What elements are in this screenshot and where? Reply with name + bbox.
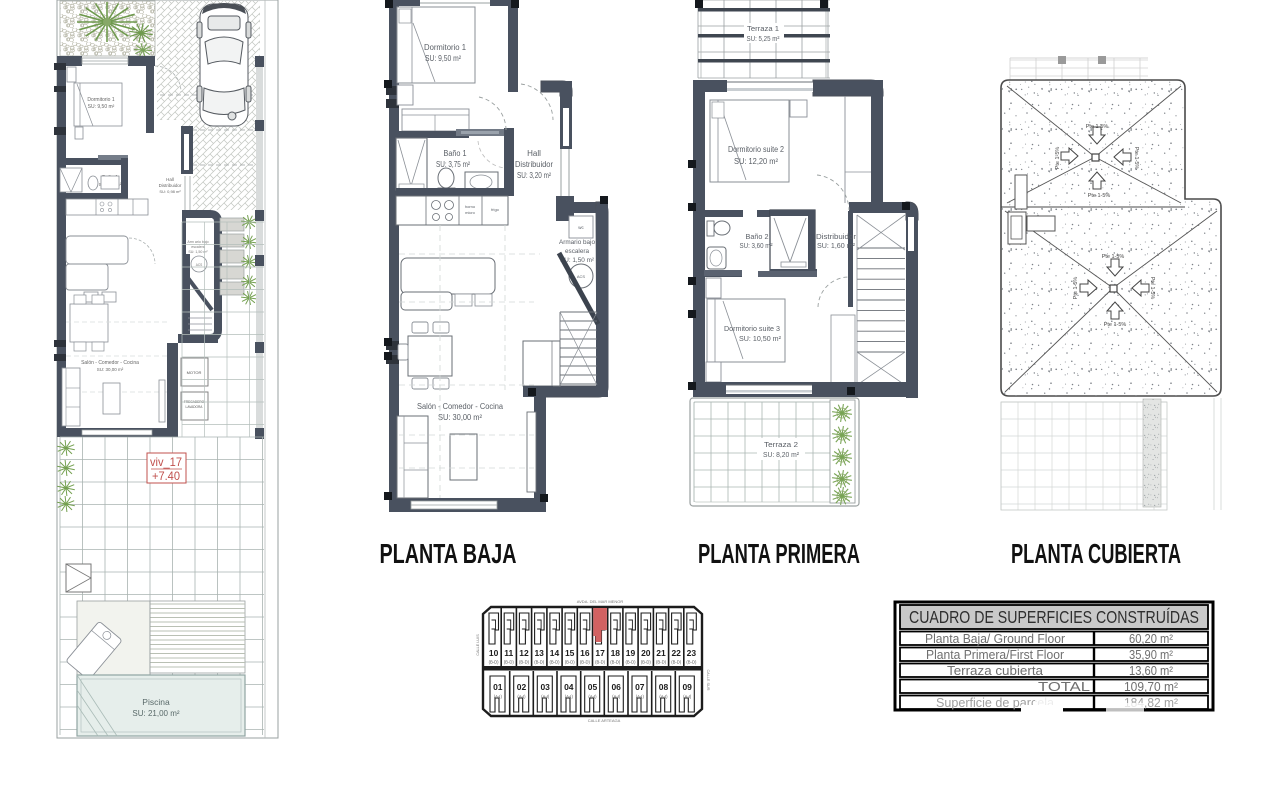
svg-text:04: 04 — [564, 682, 574, 692]
svg-text:(A-I): (A-I) — [636, 694, 645, 699]
svg-text:(B-D): (B-D) — [656, 660, 667, 665]
svg-text:60,20 m²: 60,20 m² — [1129, 631, 1174, 646]
svg-text:(B-D): (B-D) — [534, 660, 545, 665]
svg-text:01: 01 — [493, 682, 503, 692]
svg-text:CALLE LUIS: CALLE LUIS — [476, 634, 480, 656]
svg-text:Distribuidor: Distribuidor — [515, 160, 553, 169]
svg-text:SU: 30,00 m²: SU: 30,00 m² — [97, 367, 124, 372]
svg-text:14: 14 — [550, 648, 560, 658]
svg-text:21: 21 — [656, 648, 666, 658]
svg-text:SU: 21,00 m²: SU: 21,00 m² — [132, 709, 179, 718]
svg-text:+7.40: +7.40 — [152, 469, 180, 483]
svg-text:PLANTA BAJA: PLANTA BAJA — [380, 538, 517, 569]
svg-text:(B-D): (B-D) — [580, 660, 591, 665]
svg-text:SU: 10,50 m²: SU: 10,50 m² — [739, 334, 781, 343]
svg-text:02: 02 — [517, 682, 527, 692]
svg-text:(B-D): (B-D) — [549, 660, 560, 665]
svg-text:CALLE SUR: CALLE SUR — [706, 669, 710, 690]
svg-text:08: 08 — [659, 682, 669, 692]
svg-text:(B-D): (B-D) — [610, 660, 621, 665]
svg-text:03: 03 — [540, 682, 550, 692]
svg-text:Hall: Hall — [527, 149, 541, 158]
svg-text:SU: 12,20 m²: SU: 12,20 m² — [734, 157, 778, 166]
svg-text:35,90 m²: 35,90 m² — [1129, 647, 1174, 662]
svg-text:19: 19 — [626, 648, 636, 658]
svg-text:Armario bajo: Armario bajo — [559, 240, 596, 246]
svg-text:(A-I): (A-I) — [588, 694, 597, 699]
svg-text:SU: 9,50 m²: SU: 9,50 m² — [88, 104, 115, 110]
svg-text:Distribuidor: Distribuidor — [816, 232, 857, 241]
svg-text:ACS: ACS — [196, 263, 203, 267]
svg-text:ACS: ACS — [577, 274, 586, 279]
svg-text:SU: 5,25 m²: SU: 5,25 m² — [747, 36, 781, 43]
svg-text:Pte 1-5%: Pte 1-5% — [1088, 193, 1111, 199]
svg-text:(B-D): (B-D) — [625, 660, 636, 665]
svg-text:09: 09 — [682, 682, 692, 692]
svg-text:SU: 8,20 m²: SU: 8,20 m² — [763, 450, 799, 459]
svg-text:(A-I): (A-I) — [565, 694, 574, 699]
svg-text:CALLE ARTEAGA: CALLE ARTEAGA — [588, 718, 621, 723]
svg-text:wc: wc — [578, 225, 584, 230]
svg-text:(B-D): (B-D) — [671, 660, 682, 665]
svg-text:Baño 1: Baño 1 — [444, 149, 467, 158]
svg-text:TOTAL: TOTAL — [1038, 679, 1090, 694]
svg-text:(B-D): (B-D) — [686, 660, 697, 665]
svg-text:Hall: Hall — [166, 177, 174, 182]
svg-text:CUADRO DE SUPERFICIES CONSTRUÍ: CUADRO DE SUPERFICIES CONSTRUÍDAS — [909, 607, 1199, 627]
svg-text:micro: micro — [465, 210, 476, 215]
svg-text:Piscina: Piscina — [142, 697, 170, 707]
svg-text:SU: 1,60 m²: SU: 1,60 m² — [817, 241, 855, 250]
svg-text:(A-I): (A-I) — [517, 694, 526, 699]
svg-text:22: 22 — [671, 648, 681, 658]
svg-text:horno: horno — [465, 204, 476, 209]
svg-text:Pte 1-5%: Pte 1-5% — [1055, 147, 1061, 170]
svg-text:Pte 1-5%: Pte 1-5% — [1073, 277, 1079, 300]
svg-text:11: 11 — [504, 648, 513, 658]
svg-text:17: 17 — [595, 648, 605, 658]
svg-text:(A-I): (A-I) — [683, 694, 692, 699]
svg-text:PLANTA PRIMERA: PLANTA PRIMERA — [698, 538, 860, 569]
svg-text:(B-D): (B-D) — [565, 660, 576, 665]
svg-text:Terraza 1: Terraza 1 — [747, 26, 779, 33]
svg-text:Dormitorio 1: Dormitorio 1 — [87, 97, 114, 103]
svg-text:(B-D): (B-D) — [641, 660, 652, 665]
svg-text:10: 10 — [489, 648, 499, 658]
svg-text:PLANTA CUBIERTA: PLANTA CUBIERTA — [1011, 538, 1181, 569]
svg-text:05: 05 — [588, 682, 598, 692]
svg-text:Distribuidor: Distribuidor — [159, 183, 182, 188]
svg-text:07: 07 — [635, 682, 645, 692]
svg-text:16: 16 — [580, 648, 590, 658]
svg-text:Dormitorio suite 3: Dormitorio suite 3 — [724, 324, 780, 333]
svg-text:Salón - Comedor - Cocina: Salón - Comedor - Cocina — [81, 360, 139, 366]
svg-text:Baño 2: Baño 2 — [746, 232, 769, 241]
svg-text:Planta Baja/ Ground Floor: Planta Baja/ Ground Floor — [925, 631, 1066, 646]
svg-text:escalera: escalera — [565, 249, 590, 255]
svg-text:Salón - Comedor - Cocina: Salón - Comedor - Cocina — [417, 402, 504, 411]
svg-text:Terraza cubierta: Terraza cubierta — [947, 663, 1044, 678]
svg-text:escalera: escalera — [191, 245, 205, 249]
svg-text:15: 15 — [565, 648, 575, 658]
svg-text:Pte 1-5%: Pte 1-5% — [1133, 147, 1139, 170]
svg-text:Pte 1-5%: Pte 1-5% — [1149, 277, 1155, 300]
svg-text:109,70 m²: 109,70 m² — [1124, 679, 1179, 694]
svg-text:Terraza 2: Terraza 2 — [764, 440, 798, 449]
svg-text:MOTOR: MOTOR — [187, 370, 202, 375]
svg-text:(B-D): (B-D) — [504, 660, 515, 665]
svg-text:13,60 m²: 13,60 m² — [1129, 663, 1174, 678]
svg-text:Dormitorio 1: Dormitorio 1 — [424, 43, 467, 52]
svg-text:SU: 0,98 m²: SU: 0,98 m² — [159, 189, 181, 194]
svg-text:SU: 3,75 m²: SU: 3,75 m² — [436, 160, 470, 169]
svg-text:frigo: frigo — [491, 207, 500, 212]
svg-text:23: 23 — [687, 648, 697, 658]
svg-text:(A-I): (A-I) — [494, 694, 503, 699]
svg-text:viv_17: viv_17 — [150, 455, 182, 469]
svg-text:20: 20 — [641, 648, 651, 658]
svg-text:SU: 3,60 m²: SU: 3,60 m² — [740, 241, 773, 250]
svg-text:Planta Primera/First Floor: Planta Primera/First Floor — [926, 647, 1065, 662]
svg-text:(A-I): (A-I) — [612, 694, 621, 699]
svg-text:SU: 1,50 m²: SU: 1,50 m² — [188, 250, 208, 254]
svg-text:SU: 3,20 m²: SU: 3,20 m² — [517, 171, 551, 180]
svg-text:(A-I): (A-I) — [659, 694, 668, 699]
svg-text:13: 13 — [534, 648, 544, 658]
svg-text:12: 12 — [519, 648, 529, 658]
svg-text:(B-D): (B-D) — [595, 660, 606, 665]
svg-text:Dormitorio suite 2: Dormitorio suite 2 — [728, 145, 784, 154]
svg-text:06: 06 — [611, 682, 621, 692]
svg-text:(A-I): (A-I) — [541, 694, 550, 699]
svg-text:Pte 1-5%: Pte 1-5% — [1086, 124, 1109, 130]
svg-text:Pte 1-5%: Pte 1-5% — [1104, 322, 1127, 328]
svg-text:SU: 9,50 m²: SU: 9,50 m² — [425, 54, 461, 63]
svg-text:SU: 30,00 m²: SU: 30,00 m² — [438, 413, 482, 422]
svg-text:Pte 1-5%: Pte 1-5% — [1102, 254, 1125, 260]
svg-text:Arm ario bajo: Arm ario bajo — [187, 240, 208, 244]
svg-text:18: 18 — [611, 648, 621, 658]
svg-text:(B-D): (B-D) — [519, 660, 530, 665]
svg-text:LAVADORA: LAVADORA — [186, 405, 204, 409]
svg-text:(B-D): (B-D) — [489, 660, 500, 665]
svg-text:AVDA. DEL MAR MENOR: AVDA. DEL MAR MENOR — [577, 599, 624, 604]
